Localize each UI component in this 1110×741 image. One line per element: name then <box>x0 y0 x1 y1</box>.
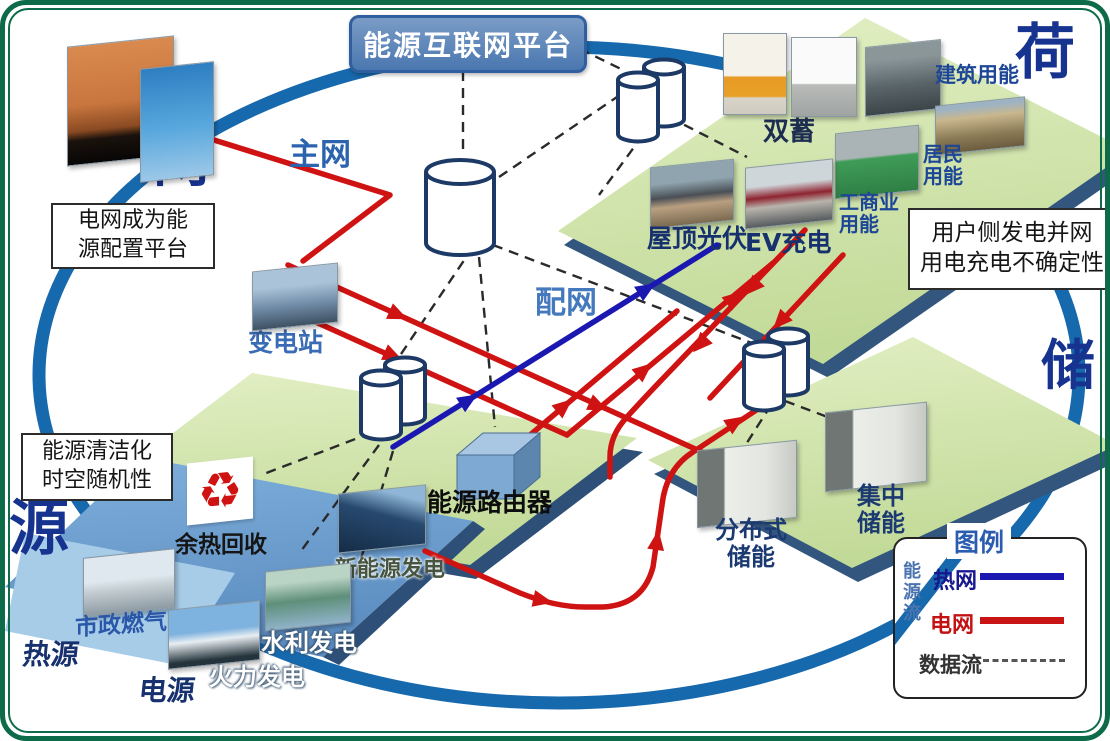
photo-grid-tower-sky <box>140 61 214 183</box>
label-distribution-grid: 配网 <box>535 277 597 322</box>
label-ev-charging: EV充电 <box>745 223 831 259</box>
label-building-energy: 建筑用能 <box>935 59 1019 89</box>
label-industrial-energy: 工商业 用能 <box>839 191 899 236</box>
label-residential-line2: 用能 <box>923 165 963 187</box>
label-power-source: 电源 <box>137 669 197 709</box>
label-distributed-line2: 储能 <box>705 544 797 571</box>
note-grid: 电网成为能 源配置平台 <box>51 203 215 269</box>
label-distributed-storage: 分布式 储能 <box>705 517 797 571</box>
photo-building-energy <box>865 39 941 117</box>
legend-title: 图例 <box>947 523 1011 559</box>
note-source-line1: 能源清洁化 <box>42 438 152 467</box>
label-centralized-storage: 集中 储能 <box>843 483 919 537</box>
photo-substation <box>252 262 338 331</box>
photo-centralized-storage <box>825 402 927 493</box>
note-grid-line1: 电网成为能 <box>78 207 188 236</box>
corner-label-source: 源 <box>9 499 69 559</box>
label-industrial-line2: 用能 <box>839 213 899 235</box>
legend-power-line-swatch <box>980 617 1064 624</box>
legend-item-data-label: 数据流 <box>919 649 982 679</box>
photo-distributed-storage <box>697 440 797 529</box>
label-distributed-line1: 分布式 <box>705 517 797 544</box>
cylinder-pair-load <box>618 60 684 142</box>
cylinder-center <box>426 160 494 255</box>
label-residential-line1: 居民 <box>923 143 963 165</box>
label-rooftop-pv: 屋顶光伏 <box>647 219 747 255</box>
note-load-line2: 用电充电不确定性 <box>920 249 1104 279</box>
legend-data-line-swatch <box>983 659 1065 662</box>
photo-ev-charging <box>745 158 833 229</box>
label-waste-heat: 余热回收 <box>175 525 267 559</box>
photo-hydro-generation <box>265 562 351 631</box>
note-load: 用户侧发电并网 用电充电不确定性 <box>908 208 1110 290</box>
label-main-grid: 主网 <box>289 129 351 174</box>
photo-dual-storage-1 <box>723 33 787 115</box>
corner-label-storage: 储 <box>1041 339 1095 393</box>
label-industrial-line1: 工商业 <box>839 191 899 213</box>
label-residential-energy: 居民 用能 <box>923 143 963 188</box>
label-centralized-line2: 储能 <box>843 510 919 537</box>
recycle-icon: ♻ <box>187 457 253 526</box>
label-thermal-generation: 火力发电 <box>209 657 305 692</box>
note-source: 能源清洁化 时空随机性 <box>21 433 173 501</box>
label-renewable-generation: 新能源发电 <box>335 551 445 583</box>
label-municipal-gas: 市政燃气 <box>75 602 167 642</box>
label-dual-storage: 双蓄 <box>763 111 815 148</box>
legend-energy-flow-label: 能源流 <box>897 561 923 624</box>
label-energy-router: 能源路由器 <box>427 483 552 519</box>
legend-item-power-label: 电网 <box>930 607 974 639</box>
photo-industrial-energy <box>835 125 919 200</box>
recycle-glyph: ♻ <box>198 460 243 523</box>
platform-title: 能源互联网平台 <box>349 15 587 73</box>
energy-internet-diagram: 能源互联网平台 网 荷 源 储 主网 配网 变电站 能源路由器 电网成为能 源配… <box>0 0 1110 741</box>
label-centralized-line1: 集中 <box>843 483 919 510</box>
legend-heat-line-swatch <box>980 573 1064 580</box>
corner-label-load: 荷 <box>1015 23 1075 83</box>
note-source-line2: 时空随机性 <box>42 467 152 496</box>
note-load-line1: 用户侧发电并网 <box>932 219 1093 249</box>
legend-item-heat-label: 热网 <box>933 563 977 595</box>
label-hydro-generation: 水利发电 <box>261 623 357 658</box>
photo-dual-storage-2 <box>791 37 857 117</box>
label-heat-source: 热源 <box>21 633 81 673</box>
photo-renewable-generation <box>338 484 426 553</box>
note-grid-line2: 源配置平台 <box>78 236 188 265</box>
